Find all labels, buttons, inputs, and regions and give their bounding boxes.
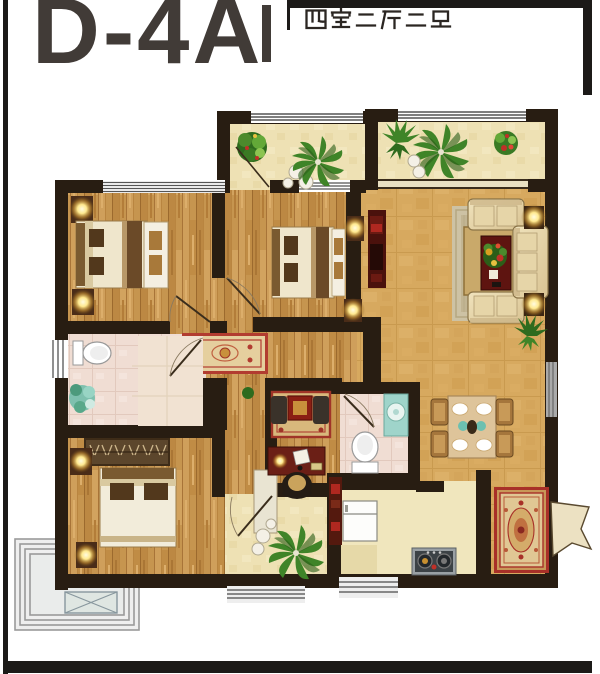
svg-text:D-4A: D-4A [32, 0, 263, 83]
